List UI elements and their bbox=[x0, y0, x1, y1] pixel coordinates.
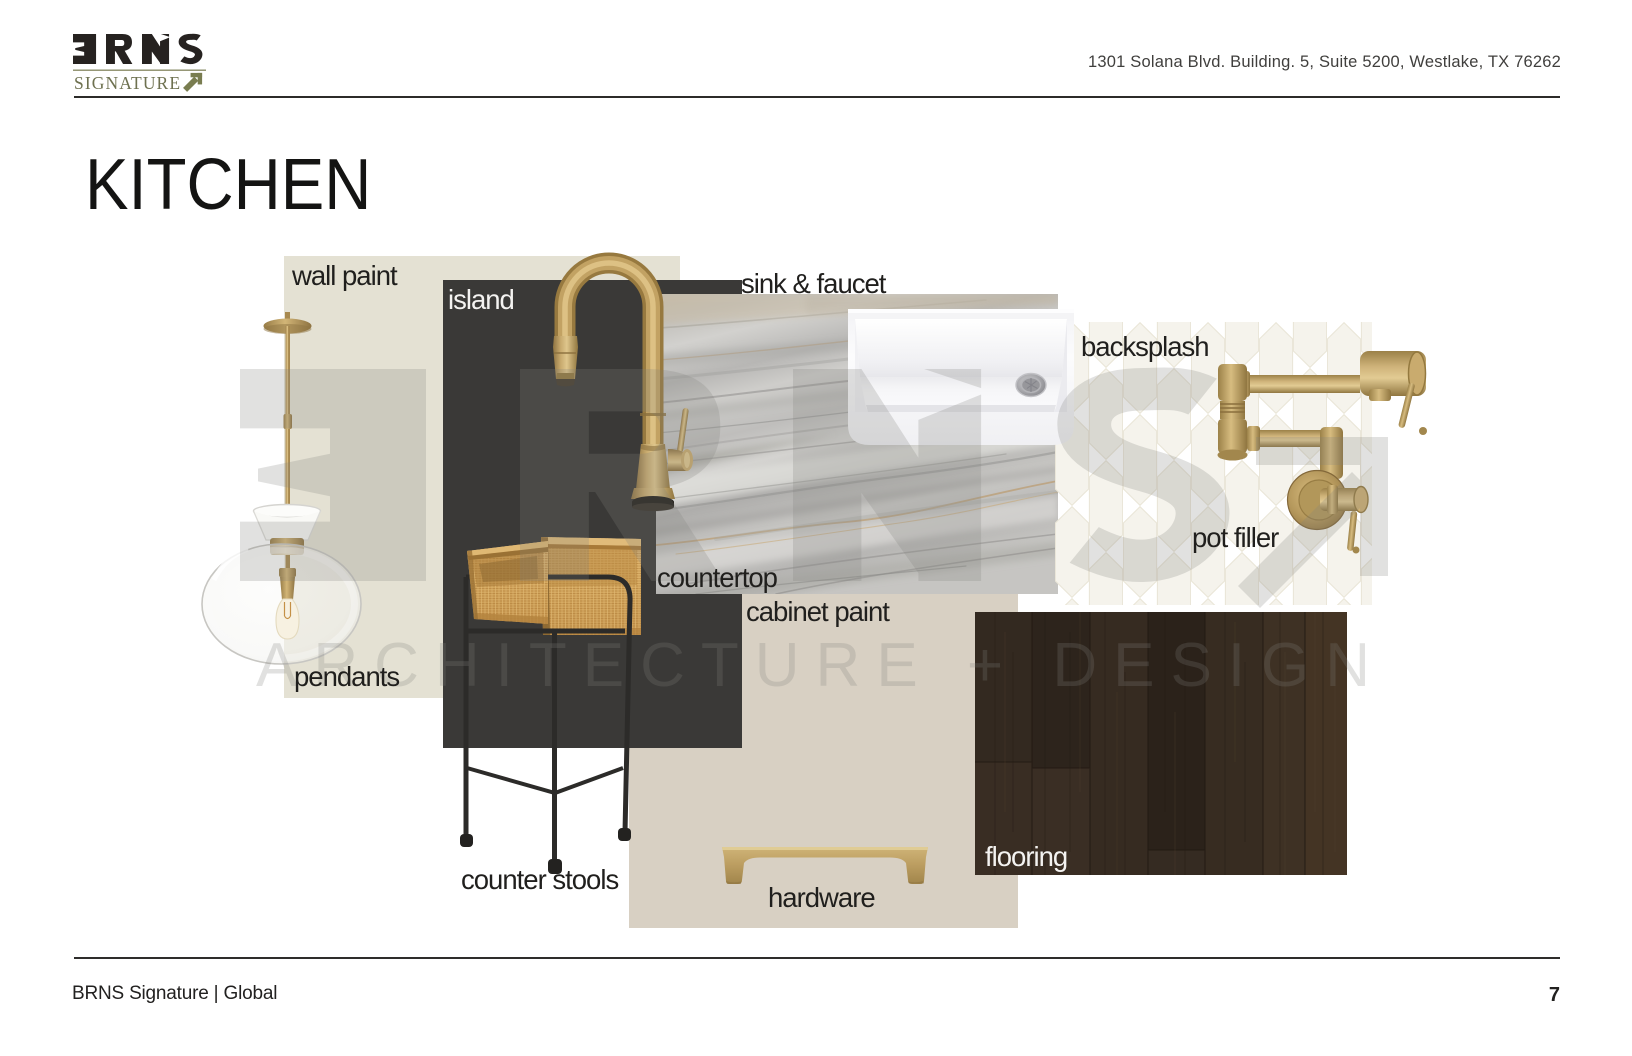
svg-text:ARCHITECTURE + DESIGN: ARCHITECTURE + DESIGN bbox=[256, 631, 1386, 700]
